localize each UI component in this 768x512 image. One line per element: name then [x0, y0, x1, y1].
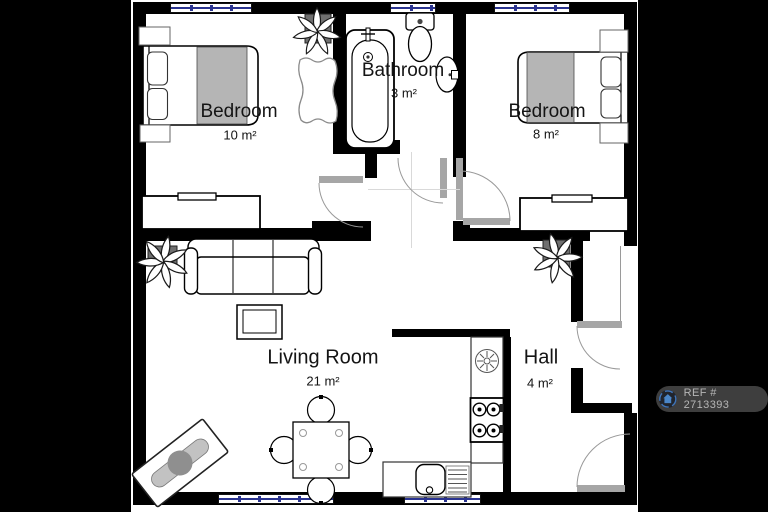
door-arc-bedroom1	[319, 183, 363, 227]
room-label-bedroom1: Bedroom	[200, 101, 277, 123]
home-icon	[658, 388, 678, 410]
stove	[471, 398, 504, 442]
plant-bedroom1	[293, 8, 342, 55]
nightstand-bedroom2-top	[600, 30, 628, 52]
room-label-hall: Hall	[524, 347, 558, 370]
door-arc-bedroom2	[460, 171, 510, 221]
ref-badge: REF # 2713393	[656, 386, 768, 412]
kitchen-sink	[416, 465, 469, 495]
room-label-bathroom: Bathroom	[362, 60, 444, 82]
plant-hall	[526, 227, 588, 288]
floorplan-viewer: Bedroom 10 m² Bathroom 3 m² Bedroom 8 m²…	[0, 0, 768, 512]
bathtub	[346, 28, 394, 148]
nightstand-bedroom2-bottom	[600, 123, 628, 143]
room-area-bedroom1: 10 m²	[223, 128, 256, 143]
sofa	[185, 239, 322, 294]
nightstand-bedroom1-bottom	[140, 125, 170, 142]
door-arc-closet	[577, 326, 620, 369]
dining-set	[269, 395, 373, 505]
room-label-bedroom2: Bedroom	[508, 101, 585, 123]
nightstand-bedroom1-top	[139, 27, 170, 45]
dresser-bedroom1	[142, 193, 260, 229]
ref-number: REF # 2713393	[684, 387, 757, 411]
rug-living-room	[132, 419, 229, 508]
room-label-living-room: Living Room	[267, 347, 378, 370]
room-area-bedroom2: 8 m²	[533, 127, 559, 142]
rug-bedroom1	[299, 58, 338, 123]
room-area-hall: 4 m²	[527, 376, 553, 391]
door-arc-bathroom	[398, 158, 443, 203]
dresser-bedroom2	[520, 195, 628, 231]
room-area-living-room: 21 m²	[306, 374, 339, 389]
toilet	[406, 13, 434, 62]
door-arc-entry	[577, 434, 630, 487]
cooker-hood	[476, 350, 499, 373]
room-area-bathroom: 3 m²	[391, 86, 417, 101]
coffee-table	[237, 305, 282, 339]
